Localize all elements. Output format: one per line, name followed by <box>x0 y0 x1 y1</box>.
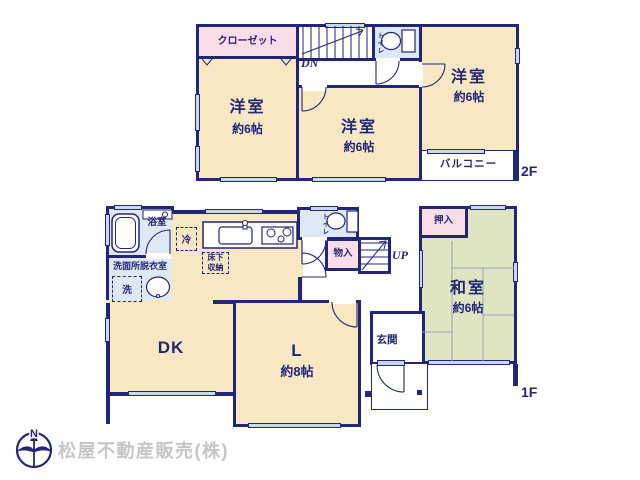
room-2f-left <box>196 56 299 181</box>
stairs-up-label: UP <box>392 248 408 262</box>
living-name: L <box>233 341 361 361</box>
window <box>114 205 142 210</box>
fridge-box: 冷 <box>176 227 197 251</box>
room-2f-mid-name: 洋室 <box>296 118 422 137</box>
living-size: 約8帖 <box>233 364 361 380</box>
window <box>220 177 277 182</box>
door-opening <box>329 300 356 304</box>
window <box>325 23 365 28</box>
window <box>470 205 506 210</box>
company-watermark: 松屋不動産販売(株) <box>58 437 229 463</box>
bath-label: 浴室 <box>140 217 174 228</box>
room-2f-right-name: 洋室 <box>419 68 519 87</box>
toilet-1f-label: トイレ <box>320 210 328 238</box>
room-2f-left-name: 洋室 <box>196 98 299 117</box>
compass-north-icon: N <box>16 428 52 467</box>
floorplan-canvas: N 冷 洗 床下収納 クローゼット 洋室 約6帖 洋室 約6帖 洋室 約6帖 ト… <box>0 0 640 480</box>
porch-post <box>365 391 371 397</box>
door-opening <box>302 85 327 91</box>
fridge-label: 冷 <box>182 232 192 246</box>
toilet-2f-label: トイレ <box>375 27 383 59</box>
balcony-label: バルコニー <box>421 158 516 171</box>
room-2f-right-size: 約6帖 <box>419 90 519 104</box>
washer-box: 洗 <box>112 276 142 302</box>
right-wall-extension <box>513 364 518 386</box>
dk-label: DK <box>106 338 236 358</box>
window <box>515 48 520 64</box>
window <box>205 209 263 214</box>
window <box>248 423 341 428</box>
dk-left-wall-extension <box>106 392 110 424</box>
room-2f-right <box>419 24 519 153</box>
floor-2f-label: 2F <box>521 163 537 180</box>
stairwell-1f <box>358 237 391 274</box>
washitsu-name: 和室 <box>419 279 517 298</box>
room-2f-left-size: 約6帖 <box>196 122 299 136</box>
entrance-porch-1f <box>371 363 428 410</box>
window <box>128 391 216 396</box>
floor-1f-label: 1F <box>521 384 537 401</box>
oshiire-label: 押入 <box>419 215 468 226</box>
window <box>312 177 386 182</box>
window <box>195 146 200 172</box>
entrance-door <box>377 360 405 366</box>
bathroom-1f <box>106 206 174 258</box>
kitchen-area-1f <box>171 210 303 307</box>
closet-2f-label: クローゼット <box>196 36 299 48</box>
door-opening <box>146 253 171 259</box>
compass-n-label: N <box>30 428 38 440</box>
stairs-dn-label: DN <box>301 56 318 70</box>
underfloor-storage-box: 床下収納 <box>202 252 229 274</box>
porch-post <box>417 390 422 395</box>
genkan-label: 玄関 <box>362 334 412 347</box>
storage-label: 物入 <box>325 248 361 259</box>
room-2f-mid-size: 約6帖 <box>296 140 422 154</box>
window <box>427 149 485 154</box>
toilet-room-1f <box>297 207 359 240</box>
window <box>428 360 510 365</box>
washer-label: 洗 <box>122 282 132 296</box>
window <box>105 214 110 246</box>
washroom-label: 洗面所脱衣室 <box>107 261 173 272</box>
underfloor-storage-label: 床下収納 <box>208 253 224 273</box>
washitsu-size: 約6帖 <box>419 301 517 315</box>
